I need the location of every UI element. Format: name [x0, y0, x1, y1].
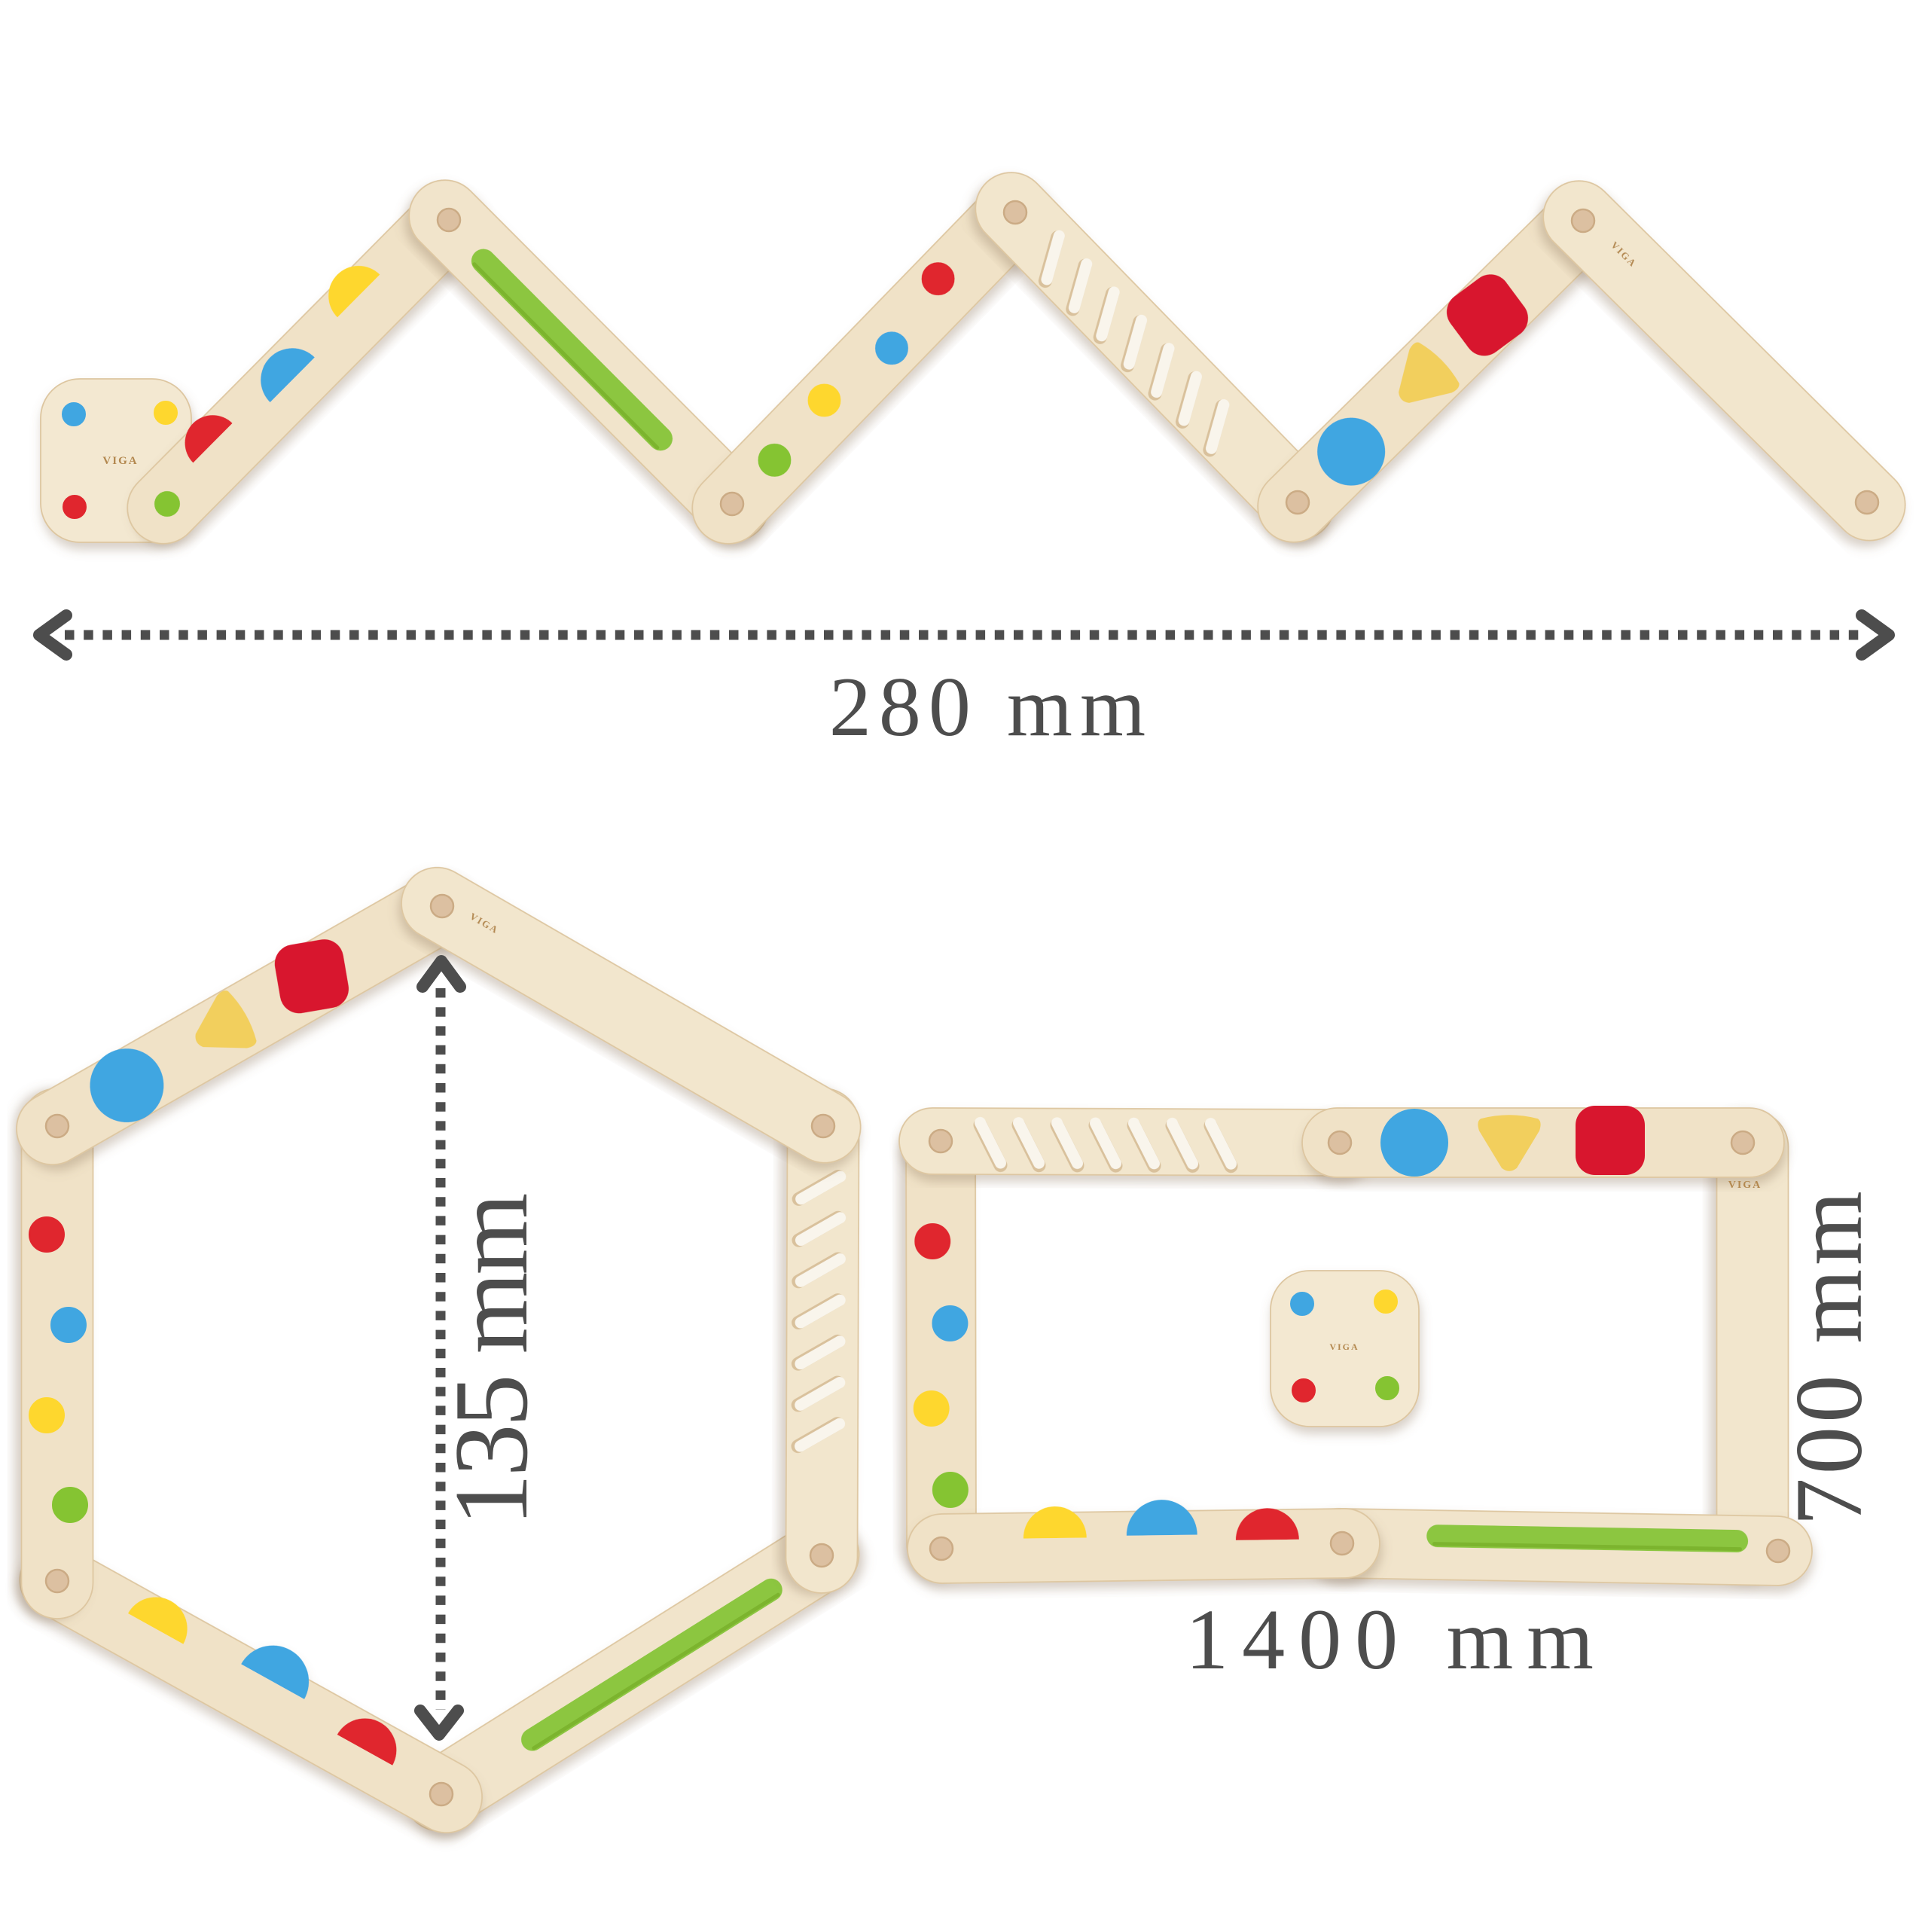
svg-text:280 mm: 280 mm: [829, 661, 1153, 754]
svg-text:700 mm: 700 mm: [1777, 1187, 1882, 1526]
svg-text:VIGA: VIGA: [1329, 1341, 1359, 1352]
svg-text:1400 mm: 1400 mm: [1185, 1592, 1607, 1687]
svg-text:VIGA: VIGA: [102, 455, 138, 467]
svg-text:135 mm: 135 mm: [433, 1195, 550, 1527]
svg-text:VIGA: VIGA: [1728, 1180, 1762, 1191]
